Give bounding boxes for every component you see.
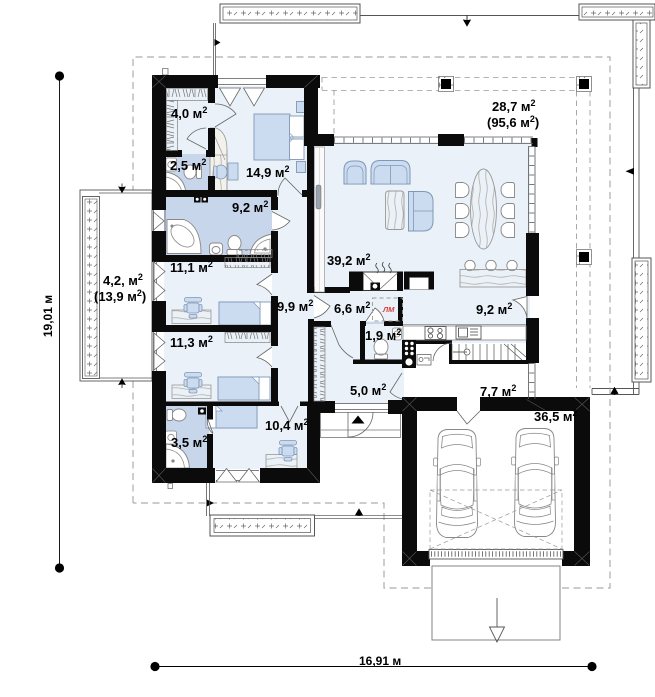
svg-text:4,2, м2: 4,2, м2	[103, 272, 143, 288]
svg-text:7,7 м2: 7,7 м2	[480, 383, 516, 399]
svg-text:4,0 м2: 4,0 м2	[171, 105, 207, 121]
svg-text:19,01 м: 19,01 м	[41, 295, 55, 337]
svg-text:28,7 м2: 28,7 м2	[492, 98, 536, 114]
svg-text:5,0 м2: 5,0 м2	[350, 382, 386, 398]
svg-text:9,2 м2: 9,2 м2	[232, 199, 268, 215]
svg-text:ЛМ: ЛМ	[382, 305, 395, 314]
svg-text:36,5 м2: 36,5 м2	[534, 408, 578, 424]
svg-text:11,3 м2: 11,3 м2	[170, 334, 213, 350]
svg-text:39,2 м2: 39,2 м2	[327, 252, 371, 268]
svg-text:1,9 м2: 1,9 м2	[365, 327, 401, 343]
svg-text:3,5 м2: 3,5 м2	[171, 434, 207, 450]
svg-text:10,4 м2: 10,4 м2	[265, 417, 309, 433]
svg-text:14,9 м2: 14,9 м2	[246, 164, 290, 180]
svg-text:16,91 м: 16,91 м	[359, 654, 401, 668]
svg-text:2,5 м2: 2,5 м2	[170, 157, 206, 173]
svg-text:9,9 м2: 9,9 м2	[277, 298, 313, 314]
svg-text:6,6 м2: 6,6 м2	[334, 300, 370, 316]
svg-text:11,1 м2: 11,1 м2	[170, 259, 213, 275]
svg-text:9,2 м2: 9,2 м2	[476, 301, 512, 317]
